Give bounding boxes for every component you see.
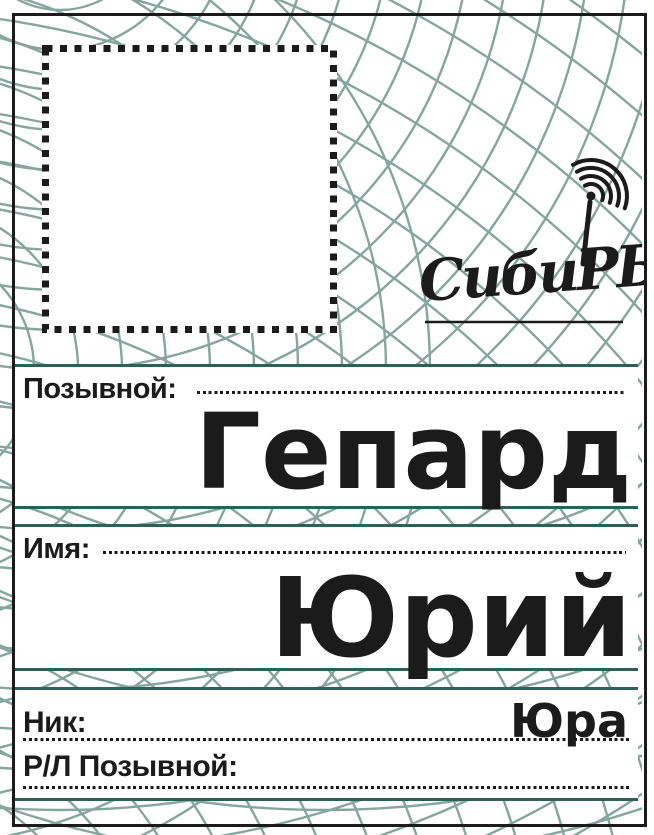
- radio-callsign-dotted-line: [23, 786, 630, 789]
- nick-row: Ник: Юра Р/Л Позывной:: [15, 687, 638, 801]
- logo-text: СибиРЬ: [417, 231, 645, 315]
- nick-label: Ник:: [23, 706, 86, 740]
- nick-value: Юра: [510, 698, 628, 744]
- club-logo: СибиРЬ: [411, 156, 645, 358]
- badge-page: СибиРЬ Позывной: Гепард Имя: Юрий Ник: Ю…: [0, 0, 654, 835]
- photo-placeholder-border: [42, 45, 337, 333]
- callsign-value: Гепард: [195, 403, 632, 502]
- callsign-row: Позывной: Гепард: [15, 364, 638, 509]
- name-value: Юрий: [270, 566, 632, 671]
- name-row: Имя: Юрий: [15, 524, 638, 671]
- badge-card: СибиРЬ Позывной: Гепард Имя: Юрий Ник: Ю…: [12, 13, 647, 827]
- photo-placeholder: [42, 45, 337, 333]
- radio-callsign-label: Р/Л Позывной:: [23, 750, 238, 784]
- name-label: Имя:: [23, 533, 90, 566]
- radio-waves-icon: [573, 160, 627, 208]
- callsign-label: Позывной:: [23, 373, 176, 406]
